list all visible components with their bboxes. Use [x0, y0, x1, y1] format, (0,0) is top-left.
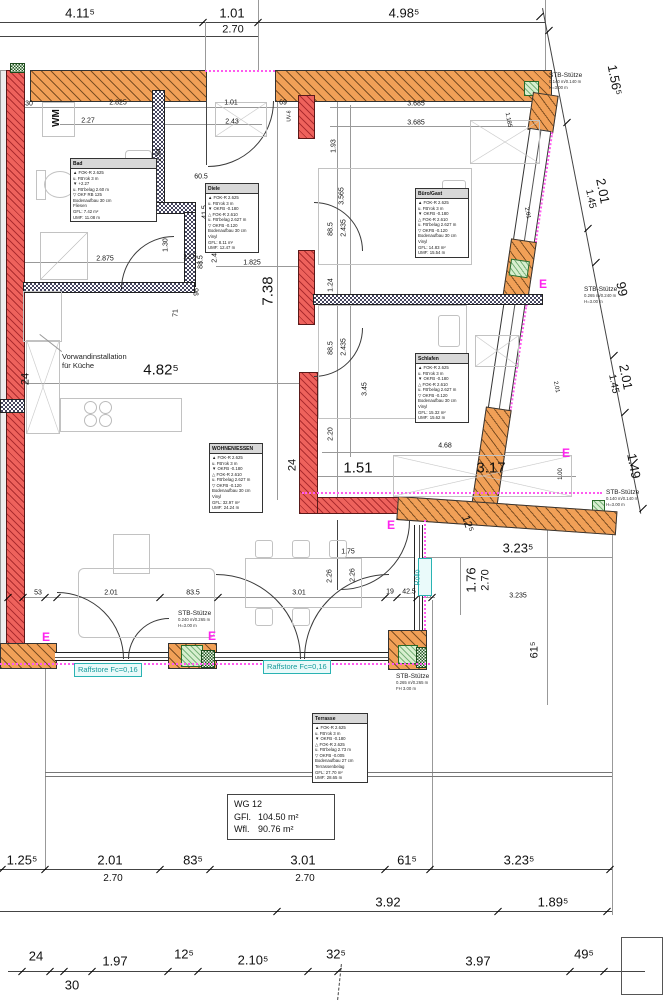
dim-label: 2.27: [81, 118, 95, 125]
dining-table: [245, 558, 362, 608]
dim-label: 2.875: [96, 256, 114, 263]
adjacent-structure: [621, 937, 663, 995]
stb-name: STB-Stütze: [549, 72, 582, 79]
extension-line: [612, 523, 613, 915]
unit-id: WG 12: [234, 798, 328, 811]
dim-label: 3.97: [465, 955, 490, 968]
dim-label: 3.23⁵: [504, 854, 535, 867]
stb-size: 0.140 m/0.140 m H=3.00 m: [549, 79, 582, 90]
dim-label: 1.00: [558, 468, 564, 480]
stb-label-right-mid: STB-Stütze 0.265 m/0.240 m H=3.00 m: [584, 286, 617, 304]
partition-left-small: [0, 399, 25, 413]
vorwand-annotation: Vorwandinstallation für Küche: [62, 352, 127, 371]
room-name: Diele: [206, 184, 258, 194]
room-stamp-lines: ▲ FOK-R 2.625 u. FB'rok 3 m ▼ OKFB -0.18…: [206, 194, 258, 252]
wall-left-red: [6, 70, 25, 657]
dim-label: 2.70: [103, 874, 122, 884]
cooktop-burner: [84, 414, 97, 427]
stb-size: 0.140 m/0.140 m H=3.00 m: [606, 496, 639, 507]
dim-label: 2.01: [104, 590, 118, 597]
dim-label: 2.435: [341, 338, 348, 356]
extension-line: [258, 0, 259, 70]
dim-label: 2.20: [328, 427, 335, 441]
room-stamp-lines: ▲ FOK-R 2.625 u. FB'rok 3 m ▼ +2.27 u. F…: [71, 169, 156, 221]
dim-label: 4.68: [438, 443, 452, 450]
stb-label-living: STB-Stütze 0.240 m/0.265 m H=3.00 m: [178, 610, 211, 628]
column-dark-green-topleft: [10, 63, 25, 73]
partition-diele-west: [184, 212, 196, 287]
column-dark-green-pier2: [201, 650, 215, 668]
dim-label: 1.89⁵: [538, 896, 569, 909]
vorwand-line2: für Küche: [62, 361, 127, 370]
dim-label: 61⁵: [397, 854, 417, 867]
e-marker: E: [387, 518, 395, 532]
dim-label: 1.24: [328, 278, 335, 292]
e-marker: E: [42, 630, 50, 644]
dim-label: 1.25⁵: [7, 854, 38, 867]
dim-label: 83⁵: [183, 854, 203, 867]
room-name: Büro/Gast: [416, 189, 468, 199]
dim-label: UV-6: [288, 110, 293, 121]
dim-line: [322, 452, 567, 453]
dim-label: 1.51: [343, 461, 372, 476]
dim-label: 2.01: [594, 177, 612, 204]
dim-label: 1.30: [163, 238, 170, 252]
dim-label: 1.825: [243, 260, 261, 267]
dim-label: 1.97: [102, 955, 127, 968]
wfl-label: Wfl.: [234, 823, 258, 836]
door-leaf-entry: [206, 100, 207, 165]
dim-label: 88.5: [328, 341, 335, 355]
unit-info-box: WG 12 GFl.104.50 m² Wfl.90.76 m²: [227, 794, 335, 840]
floor-plan: WM Bad ▲ FOK-R 2.625 u. FB'rok 3 m ▼ +2.…: [0, 0, 663, 1000]
stb-size: 0.265 m/0.240 m H=3.00 m: [584, 293, 617, 304]
wall-bedroom-south: [396, 496, 617, 535]
dim-label: 1.93: [331, 139, 338, 153]
dining-chair: [292, 540, 310, 558]
dim-label: 3.01: [290, 854, 315, 867]
dim-label: 4.82⁵: [143, 363, 178, 378]
e-marker: E: [539, 277, 547, 291]
dim-label: 30: [25, 101, 33, 108]
dim-line: [0, 22, 545, 23]
dim-label: 60.5: [194, 174, 208, 181]
dim-label: 12.5: [183, 254, 197, 261]
unit-gfl: GFl.104.50 m²: [234, 811, 328, 824]
hall-wardrobe: [215, 102, 267, 137]
stb-name: STB-Stütze: [584, 286, 617, 293]
stb-label-top: STB-Stütze 0.140 m/0.140 m H=3.00 m: [549, 72, 582, 90]
dim-label: 69: [279, 100, 287, 107]
dim-tick: [610, 352, 618, 360]
dim-tick: [621, 409, 629, 417]
cooktop-burner: [84, 401, 97, 414]
gfl-value: 104.50 m²: [258, 812, 299, 822]
dim-label: 42.5: [402, 589, 416, 596]
dim-label: 2.43: [225, 119, 239, 126]
room-name: Schlafen: [416, 354, 468, 364]
stb-size: 0.265 m/0.265 m FH 3.00 m: [396, 680, 429, 691]
wall-pier-corridor-top: [298, 95, 315, 139]
unit-wfl: Wfl.90.76 m²: [234, 823, 328, 836]
dim-label: 96: [194, 288, 201, 296]
dim-tick: [592, 259, 600, 267]
raffstore-label-2: Raffstore Fc=0,16: [263, 660, 331, 674]
dim-label: 2.70: [222, 25, 243, 36]
wall-top-right: [275, 70, 552, 102]
dim-label: 61⁵: [530, 642, 541, 659]
dim-label: 3.45: [362, 382, 369, 396]
dim-label: 4.11⁵: [65, 7, 95, 20]
dim-line: [330, 107, 530, 108]
room-stamp-lines: ▲ FOK-R 2.625 u. FB'rok 3 m ▼ OKFB -0.18…: [313, 724, 367, 782]
dim-line-row3: [8, 971, 645, 972]
stb-name: STB-Stütze: [178, 610, 211, 617]
dim-label: 49⁵: [574, 948, 594, 961]
extension-line: [432, 600, 433, 869]
stb-column-right-mid: [509, 259, 530, 279]
rollo-label: Rollo: [418, 558, 432, 596]
dim-label: 2.70: [481, 569, 492, 590]
e-marker: E: [208, 629, 216, 643]
dim-label: 3.92: [375, 896, 400, 909]
extension-line: [545, 0, 546, 70]
south-marker-line: [0, 663, 430, 665]
dim-label: 2.01: [97, 854, 122, 867]
extension-line: [460, 557, 461, 615]
dim-label: 3.17: [476, 461, 505, 476]
room-stamp-wohnen: WOHNEN/ESSEN ▲ FOK-R 2.625 u. FB'rok 3 m…: [209, 443, 263, 513]
dim-label: 24: [21, 373, 32, 385]
room-name: Bad: [71, 159, 156, 169]
dim-label: 3.685: [407, 101, 425, 108]
dim-label: 3.23⁵: [503, 542, 534, 555]
dim-label: 2.26: [327, 569, 334, 583]
wall-south-pier1: [0, 643, 57, 669]
wall-top-left: [30, 70, 207, 102]
dim-label: 83.5: [186, 590, 200, 597]
stb-column-south-pier3: [398, 645, 418, 664]
rollo-label-text: Rollo: [414, 570, 421, 586]
dim-label: 1.56⁵: [606, 64, 625, 97]
room-stamp-bad: Bad ▲ FOK-R 2.625 u. FB'rok 3 m ▼ +2.27 …: [70, 158, 157, 222]
room-stamp-lines: ▲ FOK-R 2.625 u. FB'rok 3 m ▼ OKFB -0.18…: [416, 364, 468, 422]
cooktop-burner: [99, 414, 112, 427]
dim-label: 7.38: [261, 276, 276, 305]
dining-chair: [255, 540, 273, 558]
room-stamp-terrasse: Terrasse ▲ FOK-R 2.625 u. FB'rok 3 m ▼ O…: [312, 713, 368, 783]
stb-label-right-low: STB-Stütze 0.140 m/0.140 m H=3.00 m: [606, 489, 639, 507]
dim-label: 1.75: [341, 549, 355, 556]
dim-label: 2.01: [552, 381, 560, 394]
kitchen-tall-unit: [26, 340, 60, 434]
dim-label: 24: [29, 950, 43, 963]
extension-line: [205, 22, 206, 70]
dim-label: 2.435: [341, 219, 348, 237]
e-marker: E: [562, 446, 570, 460]
shower: [40, 232, 88, 280]
dim-label: 1.01: [219, 7, 244, 20]
dim-label: 30: [65, 979, 79, 992]
dim-label: 3.685: [407, 120, 425, 127]
dim-label: 1.45: [583, 188, 597, 209]
washing-machine-label: WM: [52, 109, 62, 127]
kitchen-counter-bottom: [60, 398, 182, 432]
room-stamp-lines: ▲ FOK-R 2.625 u. FB'rok 3 m ▼ OKFB -0.18…: [210, 454, 262, 512]
dim-label: 53: [34, 590, 42, 597]
room-stamp-schlafen: Schlafen ▲ FOK-R 2.625 u. FB'rok 3 m ▼ O…: [415, 353, 469, 423]
cooktop-burner: [99, 401, 112, 414]
dim-line: [23, 383, 301, 384]
dim-label: 3.235: [509, 593, 527, 600]
room-name: Terrasse: [313, 714, 367, 724]
gfl-label: GFl.: [234, 811, 258, 824]
dim-label: 71: [173, 309, 180, 317]
dim-label: 2.26: [350, 568, 357, 582]
dim-label: 88.5: [198, 255, 205, 269]
dim-line-row2: [0, 911, 612, 912]
dim-label: 88.5: [328, 222, 335, 236]
coffee-table: [113, 534, 150, 574]
wfl-value: 90.76 m²: [258, 824, 294, 834]
vorwand-line1: Vorwandinstallation: [62, 352, 127, 361]
wall-pier-corridor-mid: [298, 250, 315, 325]
guest-wardrobe: [470, 120, 540, 164]
dim-label: 1.49: [625, 452, 643, 479]
entry-marker-line: [205, 70, 275, 72]
dim-label: 3.01: [292, 590, 306, 597]
extension-line: [277, 75, 278, 500]
dim-label: 2.825: [109, 100, 127, 107]
dim-label: 12⁵: [174, 948, 194, 961]
kitchen-counter-left: [23, 291, 62, 342]
extension-line: [547, 523, 548, 705]
raffstore-label-1: Raffstore Fc=0,16: [74, 663, 142, 677]
stb-name: STB-Stütze: [396, 673, 429, 680]
bedroom-sideboard: [475, 335, 519, 367]
extension-line: [45, 647, 46, 869]
dim-label: 24: [288, 459, 299, 471]
bed-pillow: [438, 315, 460, 347]
dim-label: 4.98⁵: [389, 7, 420, 20]
room-name: WOHNEN/ESSEN: [210, 444, 262, 454]
dining-chair: [292, 608, 310, 626]
dim-label: 1.45: [606, 373, 620, 394]
dim-line-row1: [0, 869, 612, 870]
dim-label: 1.01: [224, 100, 238, 107]
dining-chair: [255, 608, 273, 626]
stb-name: STB-Stütze: [606, 489, 639, 496]
dim-line: [0, 36, 258, 37]
partition-bedrooms: [313, 294, 543, 305]
dim-label: 2.70: [295, 874, 314, 884]
room-stamp-diele: Diele ▲ FOK-R 2.625 u. FB'rok 3 m ▼ OKFB…: [205, 183, 259, 253]
stb-label-bottom: STB-Stütze 0.265 m/0.265 m FH 3.00 m: [396, 673, 429, 691]
stb-size: 0.240 m/0.265 m H=3.00 m: [178, 617, 211, 628]
dim-label: 1.76: [465, 567, 478, 592]
dim-label: 2.10⁵: [238, 954, 269, 967]
dim-label: 32⁵: [326, 948, 346, 961]
room-stamp-lines: ▲ FOK-R 2.625 u. FB'rok 3 m ▼ OKFB -0.18…: [416, 199, 468, 257]
dim-label: 3.565: [339, 187, 346, 205]
room-stamp-buero: Büro/Gast ▲ FOK-R 2.625 u. FB'rok 3 m ▼ …: [415, 188, 469, 258]
dim-label: 2.01: [617, 363, 635, 390]
